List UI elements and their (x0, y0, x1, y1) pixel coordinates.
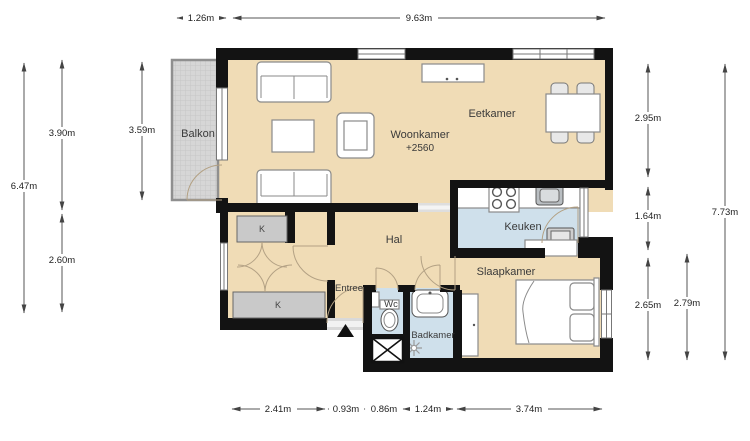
dim-bottom-4: 1.24m (403, 403, 453, 415)
keuken-label: Keuken (504, 221, 541, 233)
dim-label: 3.90m (49, 128, 75, 139)
dim-label: 2.41m (265, 404, 291, 415)
dim-bottom-1: 2.41m (232, 403, 325, 415)
window-top-left (358, 49, 405, 59)
window-top-right (513, 49, 594, 59)
sofa-top (257, 62, 331, 102)
dim-right-164: 1.64m (630, 187, 667, 250)
floor-plan: Balkon Woonkamer +2560 Eetkamer Hal Entr… (0, 0, 750, 441)
window-slaapkamer (602, 290, 612, 338)
shaft (372, 338, 403, 362)
sideboard (422, 64, 484, 82)
window-keuken (580, 188, 588, 237)
armchair (337, 113, 374, 158)
dim-top-2: 9.63m (233, 12, 605, 24)
dim-label: 7.73m (712, 207, 738, 218)
coffee-table (272, 120, 314, 152)
pillow (570, 283, 594, 310)
dim-label: 0.86m (371, 404, 397, 415)
floor-plan-drawing: Balkon Woonkamer +2560 Eetkamer Hal Entr… (0, 0, 750, 441)
closet-bottom-label: K (275, 300, 281, 310)
balkon-label: Balkon (181, 128, 215, 140)
dim-label: 3.59m (129, 125, 155, 136)
entree-label: Entree (335, 283, 363, 294)
dim-label: 2.79m (674, 298, 700, 309)
dim-right-265: 2.65m (630, 258, 667, 360)
woonkamer-elevation: +2560 (406, 143, 435, 154)
dim-label: 9.63m (406, 13, 432, 24)
dining-table (546, 94, 600, 132)
slaapkamer-label: Slaapkamer (477, 266, 536, 278)
closet-top-label: K (259, 224, 265, 234)
stove (489, 184, 519, 212)
window-left-lower (221, 243, 228, 290)
dim-label: 1.26m (188, 13, 214, 24)
dim-label: 2.95m (635, 113, 661, 124)
dim-label: 2.65m (635, 300, 661, 311)
dim-top-1: 1.26m (177, 12, 226, 24)
headboard (594, 278, 599, 346)
dim-left-390: 3.90m (44, 60, 81, 210)
bathroom-sink (412, 290, 448, 317)
dim-label: 3.74m (516, 404, 542, 415)
dim-label: 1.64m (635, 211, 661, 222)
dim-bottom-2: 0.93m (328, 403, 365, 415)
dim-label: 0.93m (333, 404, 359, 415)
dim-bottom-5: 3.74m (457, 403, 602, 415)
dim-label: 6.47m (11, 181, 37, 192)
dim-left-260: 2.60m (44, 214, 81, 312)
badkamer-label: Badkamer (411, 330, 454, 341)
hal-label: Hal (386, 234, 403, 246)
woonkamer-label: Woonkamer (390, 129, 449, 141)
wc-label: Wc (384, 299, 398, 310)
dim-label: 1.24m (415, 404, 441, 415)
wardrobe (460, 294, 478, 356)
eetkamer-label: Eetkamer (468, 108, 515, 120)
dim-left-647: 6.47m (6, 63, 43, 313)
window-balkon (217, 88, 228, 160)
dim-label: 2.60m (49, 255, 75, 266)
dim-right-773: 7.73m (707, 64, 744, 360)
dim-bottom-3: 0.86m (367, 403, 401, 415)
pillow (570, 314, 594, 341)
dim-right-295: 2.95m (630, 64, 667, 177)
dim-left-359: 3.59m (124, 62, 161, 200)
dim-right-279: 2.79m (669, 254, 706, 360)
